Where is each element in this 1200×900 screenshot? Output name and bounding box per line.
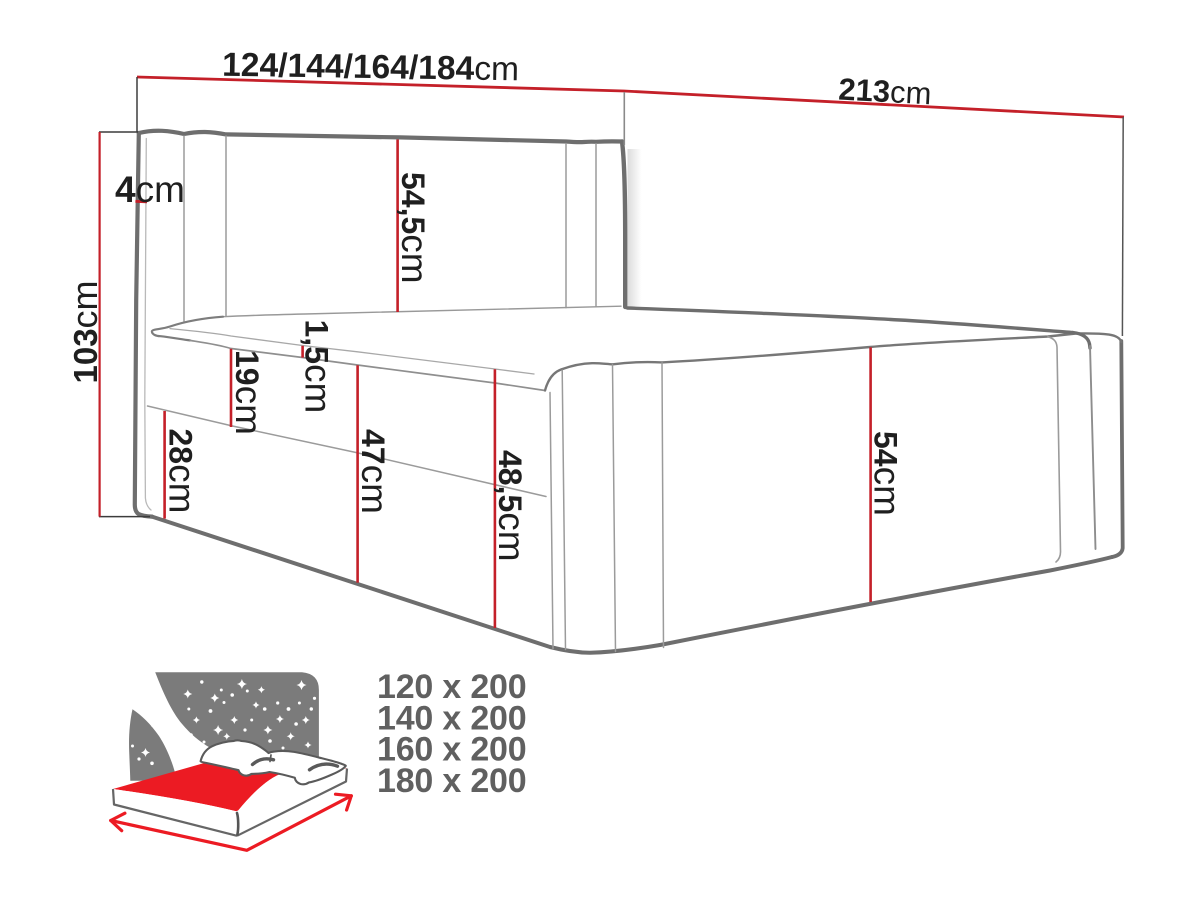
- svg-text:54cm: 54cm: [867, 431, 908, 516]
- svg-text:19cm: 19cm: [228, 350, 269, 435]
- svg-text:28cm: 28cm: [162, 429, 203, 514]
- svg-text:103cm: 103cm: [64, 280, 105, 383]
- svg-text:48,5cm: 48,5cm: [491, 450, 532, 562]
- svg-text:4cm: 4cm: [115, 169, 185, 210]
- svg-text:1,5cm: 1,5cm: [298, 320, 339, 414]
- svg-text:54,5cm: 54,5cm: [394, 172, 435, 284]
- svg-text:124/144/164/184cm: 124/144/164/184cm: [222, 47, 519, 89]
- svg-text:180 x 200: 180 x 200: [377, 762, 526, 800]
- svg-text:213cm: 213cm: [838, 72, 933, 112]
- svg-text:47cm: 47cm: [354, 429, 395, 514]
